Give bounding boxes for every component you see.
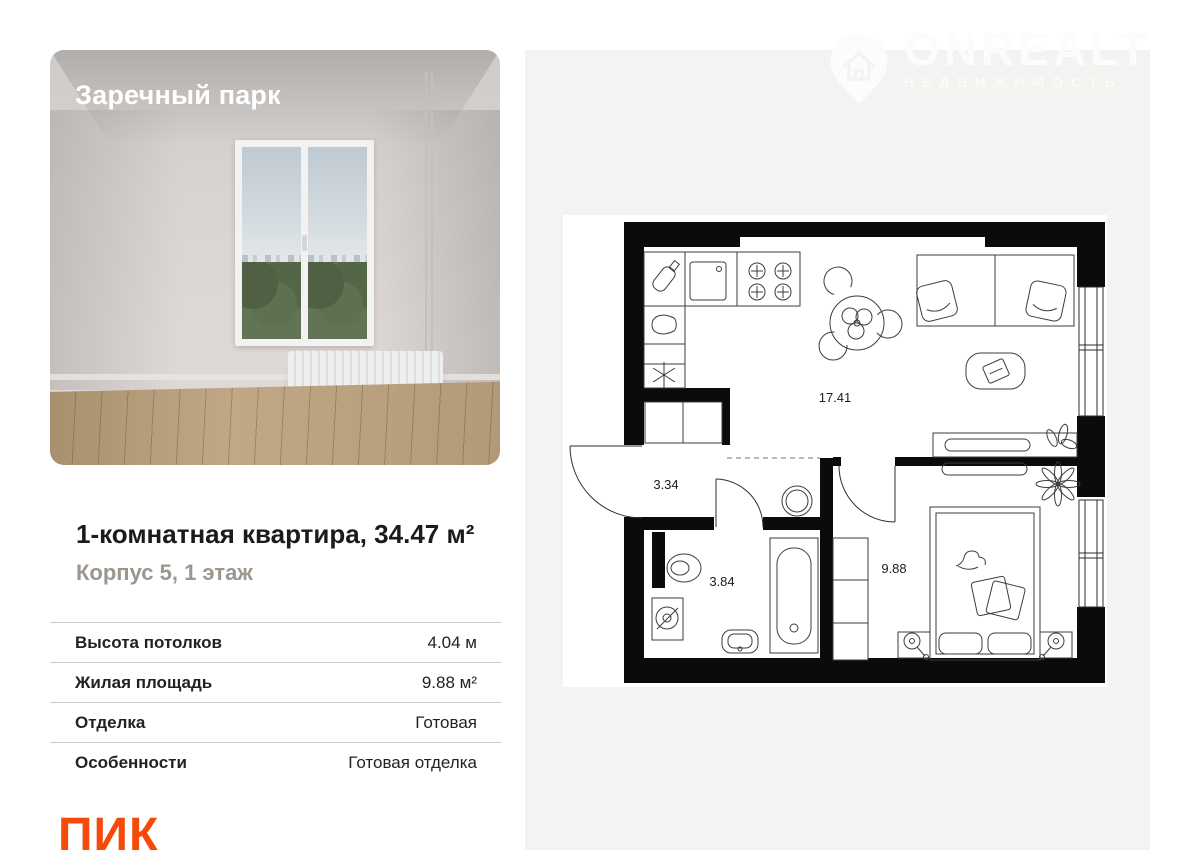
room-label-living: 17.41 [819,390,852,405]
window-bedroom-icon [1079,500,1103,607]
detail-value: Готовая [415,713,477,733]
photo-wall-shade [370,110,500,390]
photo-pipes [425,72,433,364]
window-living-icon [1079,287,1103,416]
photo-window [235,140,374,346]
pik-logo[interactable]: ПИК [58,812,159,850]
window-pane-right [308,147,367,339]
floorplan-panel[interactable]: 17.41 3.34 3.84 9.88 [563,215,1107,687]
floorplan-svg: 17.41 3.34 3.84 9.88 [563,215,1107,687]
watermark-brand: ONREALT [904,26,1151,72]
listing-page: ONREALT НЕДВИЖИМОСТЬ Заречный парк [0,0,1200,850]
photo-card[interactable]: Заречный парк [50,50,500,465]
window-mullion [301,147,308,339]
listing-title: 1-комнатная квартира, 34.47 м² [76,519,474,550]
closet-icon [833,538,868,660]
detail-label: Особенности [75,753,187,773]
hall-closet-icon [645,402,722,443]
onrealt-pin-icon [828,30,890,108]
table-row: Отделка Готовая [50,702,501,742]
photo-floor [50,380,500,465]
room-label-bathroom: 3.84 [709,574,734,589]
watermark: ONREALT НЕДВИЖИМОСТЬ [828,26,1151,108]
wall-recess [740,237,985,247]
window-handle-icon [302,235,307,251]
table-row: Высота потолков 4.04 м [50,622,501,662]
detail-value: Готовая отделка [348,753,477,773]
window-pane-left [242,147,301,339]
trees [308,262,367,339]
detail-value: 4.04 м [428,633,478,653]
listing-subtitle: Корпус 5, 1 этаж [76,560,253,586]
details-table: Высота потолков 4.04 м Жилая площадь 9.8… [50,622,501,782]
detail-label: Жилая площадь [75,673,212,693]
table-row: Жилая площадь 9.88 м² [50,662,501,702]
table-row: Особенности Готовая отделка [50,742,501,782]
room-label-hallway: 3.34 [653,477,678,492]
detail-label: Высота потолков [75,633,222,653]
photo-wall-shade [50,110,180,390]
room-label-bedroom: 9.88 [881,561,906,576]
detail-label: Отделка [75,713,145,733]
project-name: Заречный парк [75,80,281,111]
detail-value: 9.88 м² [422,673,477,693]
trees [242,262,301,339]
watermark-tagline: НЕДВИЖИМОСТЬ [904,74,1151,90]
